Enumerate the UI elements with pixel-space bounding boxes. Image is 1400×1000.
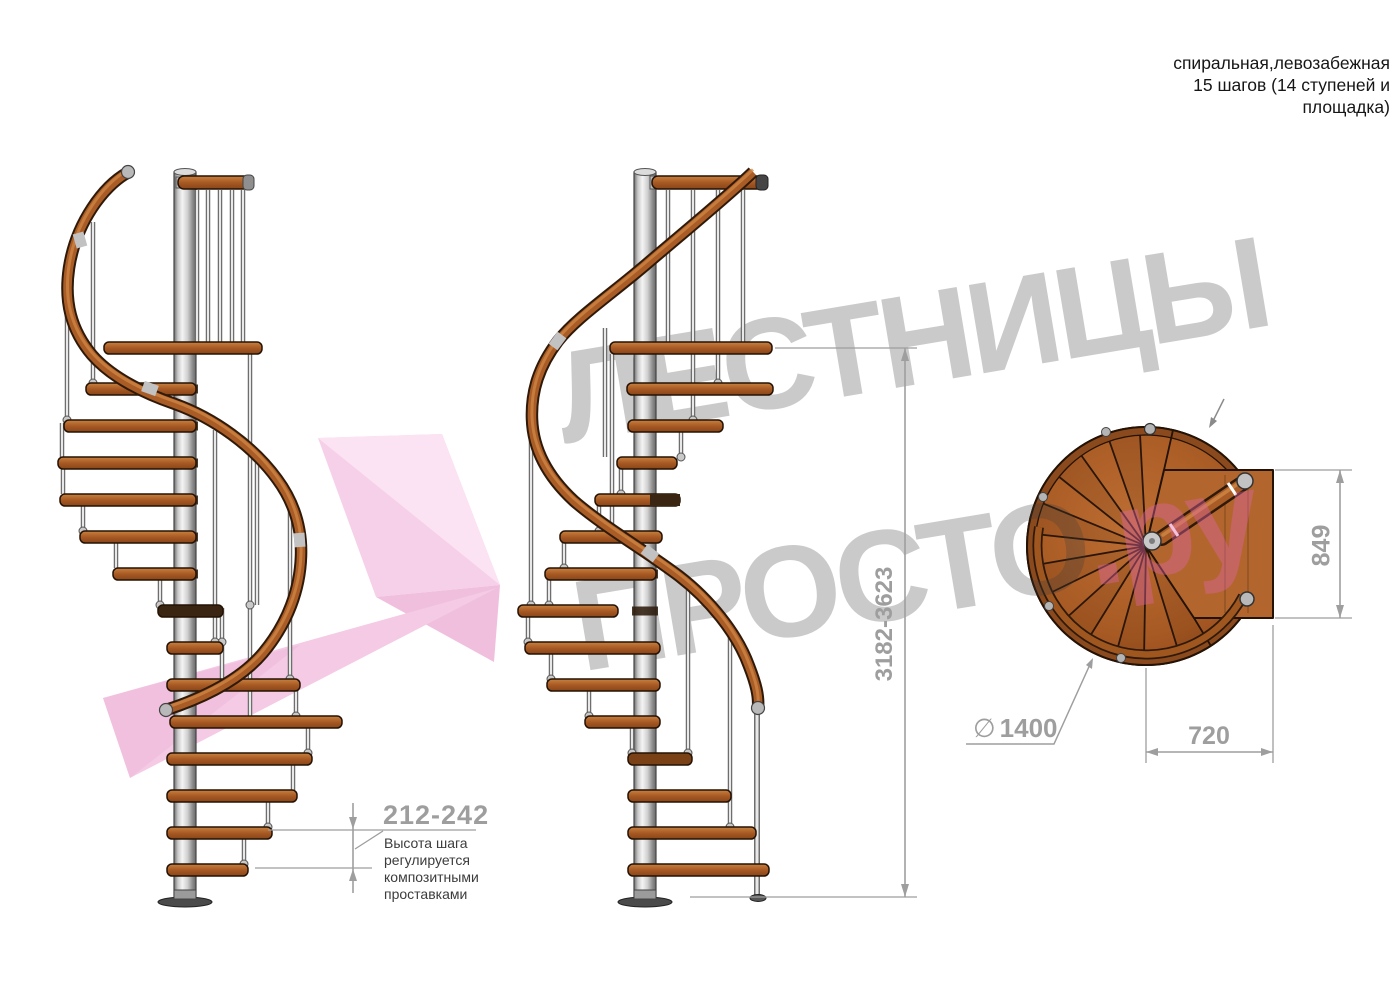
platform-left — [104, 342, 262, 354]
plan-top-leader-arrow — [1209, 399, 1224, 428]
platform-middle — [610, 342, 772, 354]
diameter-icon: ∅ — [973, 713, 996, 743]
handrail-start-cap-left — [122, 166, 135, 179]
handrail-ball-connector — [752, 702, 765, 715]
side-view-middle — [518, 169, 773, 908]
drawing-title: спиральная,левозабежная 15 шагов (14 сту… — [1173, 52, 1390, 118]
title-line-3: площадка) — [1173, 96, 1390, 118]
label-landing-depth: 849 — [1308, 518, 1337, 574]
note-line-2: регулируется — [384, 852, 479, 869]
label-landing-width: 720 — [1176, 722, 1242, 751]
title-line-1: спиральная,левозабежная — [1173, 52, 1390, 74]
label-total-height: 3182-3623 — [871, 565, 899, 683]
railing-end-cap-middle — [756, 175, 768, 190]
note-line-3: композитными — [384, 869, 479, 886]
drawing-sheet: { "title": { "line1": "спиральная,левоза… — [0, 0, 1400, 1000]
label-diameter: ∅1400 — [973, 713, 1058, 744]
step-height-note: Высота шага регулируется композитными пр… — [384, 835, 479, 903]
side-view-left — [58, 166, 342, 908]
railing-end-cap-left — [243, 175, 254, 190]
note-line-1: Высота шага — [384, 835, 479, 852]
label-step-height: 212-242 — [383, 800, 489, 831]
handrail-end-cap-left — [160, 704, 173, 717]
top-railing-left — [176, 175, 254, 190]
treads-left — [58, 342, 342, 876]
title-line-2: 15 шагов (14 ступеней и — [1173, 74, 1390, 96]
note-line-4: проставками — [384, 886, 479, 903]
terminal-post-foot — [750, 895, 766, 902]
diameter-value: 1400 — [1000, 713, 1058, 743]
elevation-views — [0, 0, 1400, 1000]
